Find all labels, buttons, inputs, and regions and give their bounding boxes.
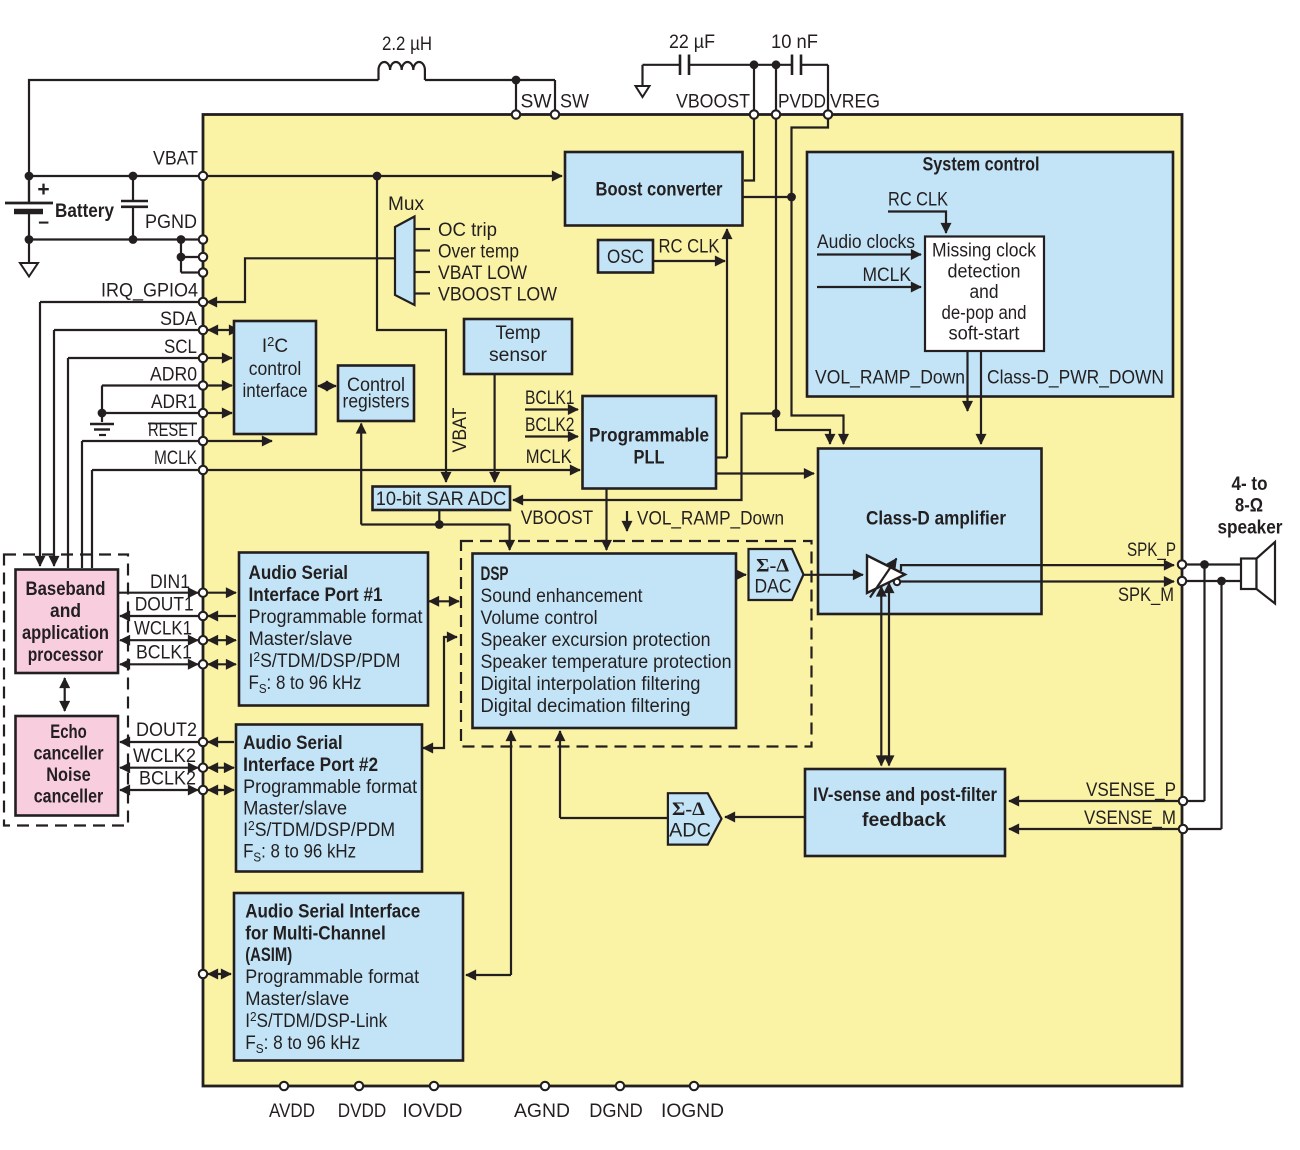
svg-text:IV-sense and post-filter: IV-sense and post-filter [813, 785, 998, 806]
svg-text:I2S/TDM/DSP/PDM: I2S/TDM/DSP/PDM [243, 818, 395, 841]
svg-text:VBAT LOW: VBAT LOW [438, 263, 527, 284]
svg-text:and: and [970, 282, 999, 303]
svg-text:PLL: PLL [634, 448, 665, 469]
svg-text:VBAT: VBAT [450, 407, 471, 452]
svg-text:22 µF: 22 µF [669, 32, 715, 53]
svg-text:(ASIM): (ASIM) [245, 945, 292, 966]
svg-text:MCLK: MCLK [863, 265, 912, 286]
svg-text:Sound enhancement: Sound enhancement [481, 586, 644, 607]
svg-text:control: control [249, 359, 302, 380]
svg-text:Class-D_PWR_DOWN: Class-D_PWR_DOWN [987, 368, 1164, 389]
svg-text:Digital decimation filtering: Digital decimation filtering [481, 696, 691, 717]
svg-text:detection: detection [948, 261, 1021, 282]
svg-text:AVDD: AVDD [269, 1101, 315, 1122]
svg-text:Programmable format: Programmable format [249, 607, 424, 628]
svg-text:DGND: DGND [589, 1101, 643, 1122]
svg-text:VBOOST: VBOOST [676, 92, 750, 113]
svg-text:Programmable format: Programmable format [245, 967, 420, 988]
svg-text:BCLK2: BCLK2 [139, 769, 196, 790]
svg-text:SPK_P: SPK_P [1127, 540, 1176, 561]
svg-text:ADR1: ADR1 [151, 392, 197, 413]
svg-text:speaker: speaker [1218, 518, 1284, 539]
svg-text:SPK_M: SPK_M [1118, 585, 1174, 606]
svg-text:SW: SW [521, 92, 552, 113]
svg-text:IOVDD: IOVDD [403, 1101, 463, 1122]
svg-text:Programmable: Programmable [589, 426, 709, 447]
svg-text:processor: processor [28, 645, 104, 666]
svg-text:ADR0: ADR0 [150, 365, 197, 386]
svg-text:VOL_RAMP_Down: VOL_RAMP_Down [637, 509, 784, 530]
svg-text:PVDD: PVDD [778, 92, 826, 113]
svg-text:Audio Serial: Audio Serial [249, 563, 349, 584]
svg-text:WCLK1: WCLK1 [134, 619, 192, 640]
svg-text:Echo: Echo [50, 722, 87, 743]
svg-text:Noise: Noise [46, 765, 91, 786]
svg-text:VBOOST: VBOOST [521, 508, 594, 529]
svg-text:+: + [37, 178, 49, 201]
svg-text:Speaker excursion protection: Speaker excursion protection [481, 630, 711, 651]
svg-text:Boost converter: Boost converter [596, 180, 724, 201]
svg-text:AGND: AGND [514, 1101, 570, 1122]
svg-text:for Multi-Channel: for Multi-Channel [245, 924, 386, 945]
svg-text:I2S/TDM/DSP/PDM: I2S/TDM/DSP/PDM [249, 649, 401, 672]
svg-text:interface: interface [243, 381, 308, 402]
svg-text:SCL: SCL [164, 337, 197, 358]
svg-text:Interface Port #1: Interface Port #1 [249, 585, 383, 606]
svg-text:VBAT: VBAT [153, 149, 198, 170]
svg-text:sensor: sensor [489, 345, 548, 366]
svg-text:ADC: ADC [669, 821, 711, 842]
svg-text:4- to: 4- to [1232, 474, 1268, 495]
svg-text:WCLK2: WCLK2 [133, 746, 196, 767]
svg-text:Digital interpolation filterin: Digital interpolation filtering [481, 674, 701, 695]
svg-text:RC CLK: RC CLK [888, 190, 948, 211]
svg-text:Interface Port #2: Interface Port #2 [243, 755, 378, 776]
svg-text:SDA: SDA [160, 309, 197, 330]
svg-text:Audio Serial Interface: Audio Serial Interface [245, 902, 420, 923]
svg-text:OSC: OSC [607, 247, 644, 268]
svg-text:VOL_RAMP_Down: VOL_RAMP_Down [815, 368, 965, 389]
svg-text:Over temp: Over temp [438, 242, 519, 263]
svg-text:Battery: Battery [55, 201, 114, 222]
svg-text:DAC: DAC [755, 577, 792, 598]
svg-text:VREG: VREG [830, 92, 880, 113]
svg-text:VSENSE_M: VSENSE_M [1084, 808, 1176, 829]
svg-text:VSENSE_P: VSENSE_P [1086, 780, 1176, 801]
svg-text:8-Ω: 8-Ω [1235, 496, 1263, 517]
svg-text:application: application [22, 623, 109, 644]
svg-text:Speaker temperature protection: Speaker temperature protection [481, 652, 732, 673]
svg-text:2.2 µH: 2.2 µH [382, 34, 432, 55]
svg-text:DOUT2: DOUT2 [136, 720, 197, 741]
svg-text:Audio clocks: Audio clocks [817, 232, 915, 253]
svg-text:feedback: feedback [862, 810, 946, 831]
svg-text:Audio Serial: Audio Serial [243, 733, 343, 754]
svg-text:Master/slave: Master/slave [249, 629, 353, 650]
svg-text:MCLK: MCLK [154, 448, 197, 469]
svg-text:Master/slave: Master/slave [243, 799, 347, 820]
svg-text:Volume control: Volume control [481, 608, 598, 629]
svg-text:SW: SW [560, 92, 589, 113]
svg-text:registers: registers [343, 392, 410, 413]
svg-text:canceller: canceller [34, 787, 104, 808]
svg-text:DSP: DSP [481, 564, 509, 585]
svg-text:PGND: PGND [145, 212, 197, 233]
svg-text:de-pop and: de-pop and [942, 303, 1027, 324]
svg-text:System control: System control [923, 155, 1040, 176]
svg-text:I2C: I2C [262, 334, 288, 357]
svg-text:MCLK: MCLK [526, 447, 572, 468]
svg-text:and: and [50, 601, 81, 622]
svg-text:Missing clock: Missing clock [932, 241, 1036, 262]
svg-text:Programmable format: Programmable format [243, 777, 418, 798]
svg-text:Baseband: Baseband [26, 579, 106, 600]
svg-text:10 nF: 10 nF [771, 32, 818, 53]
svg-text:Σ-Δ: Σ-Δ [672, 799, 705, 820]
svg-text:soft-start: soft-start [949, 324, 1021, 345]
svg-text:BCLK1: BCLK1 [136, 643, 192, 664]
svg-text:Master/slave: Master/slave [245, 989, 349, 1010]
svg-text:Class-D amplifier: Class-D amplifier [866, 509, 1007, 530]
svg-text:DVDD: DVDD [338, 1101, 387, 1122]
svg-text:I2S/TDM/DSP-Link: I2S/TDM/DSP-Link [245, 1009, 387, 1032]
svg-text:DIN1: DIN1 [150, 572, 190, 593]
svg-text:Mux: Mux [388, 194, 424, 215]
svg-text:Σ-Δ: Σ-Δ [756, 556, 789, 577]
svg-text:DOUT1: DOUT1 [135, 595, 194, 616]
svg-text:BCLK1: BCLK1 [525, 388, 575, 409]
svg-text:canceller: canceller [34, 744, 105, 765]
svg-text:OC trip: OC trip [438, 220, 497, 241]
svg-text:RC CLK: RC CLK [659, 237, 720, 258]
svg-text:VBOOST LOW: VBOOST LOW [438, 285, 557, 306]
svg-text:IOGND: IOGND [661, 1101, 724, 1122]
svg-text:Temp: Temp [496, 323, 541, 344]
svg-text:10-bit SAR ADC: 10-bit SAR ADC [376, 489, 507, 510]
svg-text:IRQ_GPIO4: IRQ_GPIO4 [101, 281, 198, 302]
svg-text:−: − [38, 213, 49, 234]
svg-text:BCLK2: BCLK2 [525, 415, 575, 436]
